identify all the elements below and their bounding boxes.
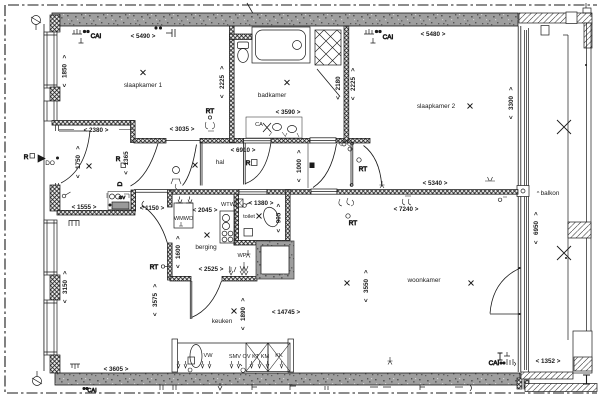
svg-text:< 2180: < 2180 bbox=[335, 76, 342, 100]
svg-text:CAI: CAI bbox=[87, 388, 97, 394]
svg-text:< 14745 >: < 14745 > bbox=[272, 309, 301, 316]
svg-text:< 3550 >: < 3550 > bbox=[363, 269, 370, 302]
svg-text:WTW: WTW bbox=[221, 202, 236, 208]
svg-text:< 1352 >: < 1352 > bbox=[536, 358, 561, 365]
svg-text:toilet: toilet bbox=[243, 214, 255, 220]
svg-text:RT: RT bbox=[150, 264, 158, 271]
svg-text:< 3035 >: < 3035 > bbox=[170, 126, 195, 133]
svg-text:slaapkamer 1: slaapkamer 1 bbox=[124, 82, 163, 89]
svg-text:DO: DO bbox=[45, 160, 55, 167]
svg-text:RT: RT bbox=[206, 108, 214, 115]
svg-text:< 2225 >: < 2225 > bbox=[350, 67, 357, 100]
svg-text:< 1750 >: < 1750 > bbox=[75, 145, 82, 178]
svg-text:woonkamer: woonkamer bbox=[406, 277, 441, 284]
svg-text:< 3150 >: < 3150 > bbox=[62, 270, 69, 303]
svg-text:< 1850 >: < 1850 > bbox=[62, 54, 69, 87]
svg-text:WP: WP bbox=[237, 253, 246, 259]
svg-text:CAI: CAI bbox=[489, 360, 500, 367]
svg-text:R: R bbox=[24, 154, 29, 161]
svg-text:< 2380 >: < 2380 > bbox=[84, 127, 109, 134]
svg-text:^: ^ bbox=[537, 191, 540, 197]
svg-text:< 1600 >: < 1600 > bbox=[175, 235, 182, 268]
svg-text:CAI: CAI bbox=[91, 33, 102, 40]
svg-text:slaapkamer 2: slaapkamer 2 bbox=[417, 103, 456, 110]
svg-text:R: R bbox=[246, 160, 251, 167]
svg-text:< 1150 >: < 1150 > bbox=[140, 205, 165, 212]
svg-text:< 6910 >: < 6910 > bbox=[231, 147, 256, 154]
svg-text:badkamer: badkamer bbox=[258, 92, 287, 99]
svg-text:< 3575 >: < 3575 > bbox=[152, 283, 159, 316]
svg-text:< 2045 >: < 2045 > bbox=[193, 207, 218, 214]
svg-text:SMV OV KT KM: SMV OV KT KM bbox=[229, 354, 270, 360]
svg-text:< 7240 >: < 7240 > bbox=[394, 206, 419, 213]
svg-text:D: D bbox=[117, 181, 124, 186]
svg-text:KK: KK bbox=[275, 353, 283, 359]
svg-text:< 3300 >: < 3300 > bbox=[508, 86, 515, 119]
svg-text:< 1555 >: < 1555 > bbox=[72, 204, 97, 211]
svg-text:berging: berging bbox=[195, 244, 217, 251]
svg-text:< 1000 >: < 1000 > bbox=[296, 149, 303, 182]
svg-text:< 5490 >: < 5490 > bbox=[131, 33, 156, 40]
svg-text:< 6950 >: < 6950 > bbox=[533, 211, 540, 244]
svg-text:WMWD: WMWD bbox=[174, 216, 193, 222]
svg-text:VW: VW bbox=[203, 353, 213, 359]
svg-text:< 3590 >: < 3590 > bbox=[276, 109, 301, 116]
svg-text:< 2525 >: < 2525 > bbox=[199, 266, 224, 273]
svg-text:RT: RT bbox=[359, 166, 367, 173]
svg-text:R: R bbox=[116, 156, 121, 163]
svg-text:CA: CA bbox=[255, 122, 263, 128]
svg-text:< 2225 >: < 2225 > bbox=[219, 65, 226, 98]
svg-text:CAI: CAI bbox=[383, 34, 394, 41]
svg-text:hal: hal bbox=[216, 159, 225, 166]
svg-text:RT: RT bbox=[349, 220, 357, 227]
svg-text:< 1890 >: < 1890 > bbox=[240, 297, 247, 330]
svg-text:keuken: keuken bbox=[212, 318, 233, 325]
svg-text:GV: GV bbox=[119, 195, 126, 200]
svg-text:< 5480 >: < 5480 > bbox=[421, 31, 446, 38]
svg-text:< 3605 >: < 3605 > bbox=[104, 366, 129, 373]
svg-text:< 905 >: < 905 > bbox=[276, 203, 283, 232]
svg-text:< 1380 >: < 1380 > bbox=[249, 200, 274, 207]
svg-text:< 5340 >: < 5340 > bbox=[423, 180, 448, 187]
svg-text:balkon: balkon bbox=[541, 190, 560, 197]
